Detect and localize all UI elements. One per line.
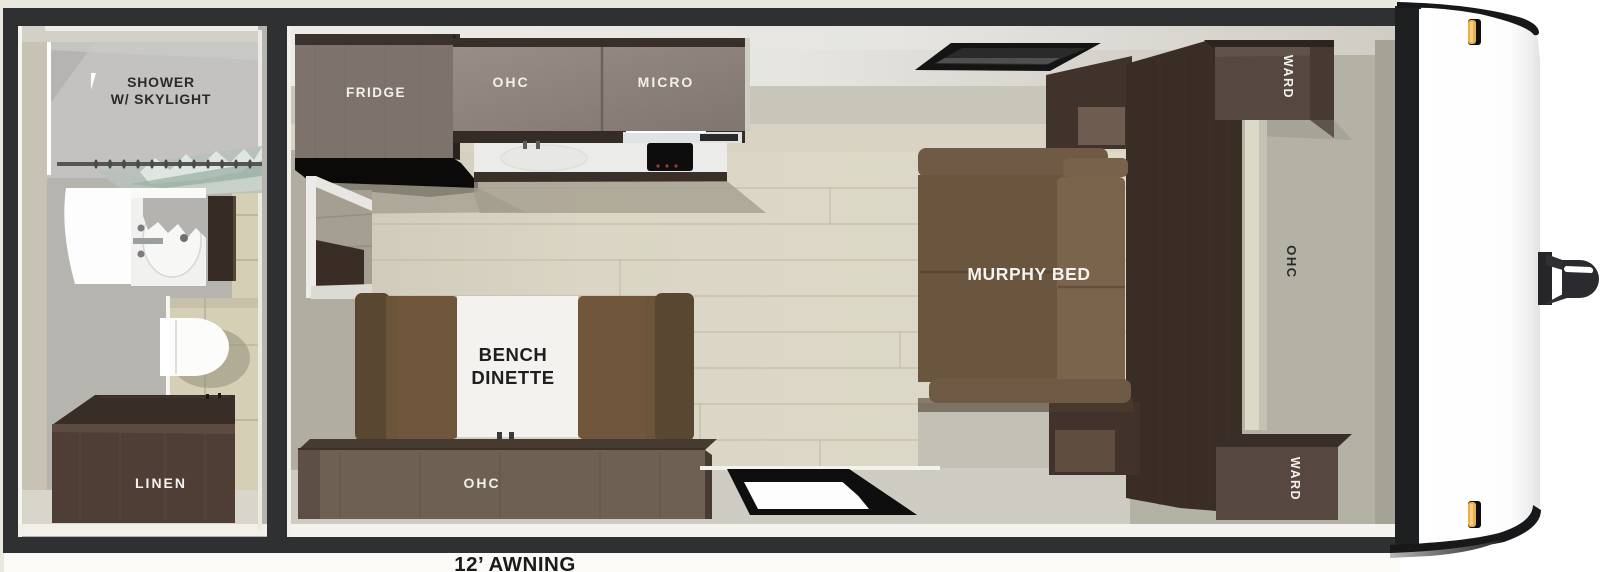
svg-text:BENCH: BENCH <box>479 344 548 365</box>
svg-text:MICRO: MICRO <box>638 74 695 90</box>
svg-text:W/ SKYLIGHT: W/ SKYLIGHT <box>111 91 212 107</box>
svg-text:LINEN: LINEN <box>135 475 187 491</box>
svg-text:WARD: WARD <box>1288 457 1302 501</box>
svg-text:OHC: OHC <box>1284 245 1299 278</box>
svg-text:FRIDGE: FRIDGE <box>346 85 406 100</box>
svg-text:OHC: OHC <box>492 74 529 90</box>
svg-text:WARD: WARD <box>1281 55 1295 99</box>
svg-text:MURPHY BED: MURPHY BED <box>967 264 1090 284</box>
svg-text:OHC: OHC <box>463 475 500 491</box>
svg-text:12’ AWNING: 12’ AWNING <box>454 553 576 572</box>
svg-text:SHOWER: SHOWER <box>127 74 195 90</box>
svg-text:DINETTE: DINETTE <box>471 367 554 388</box>
